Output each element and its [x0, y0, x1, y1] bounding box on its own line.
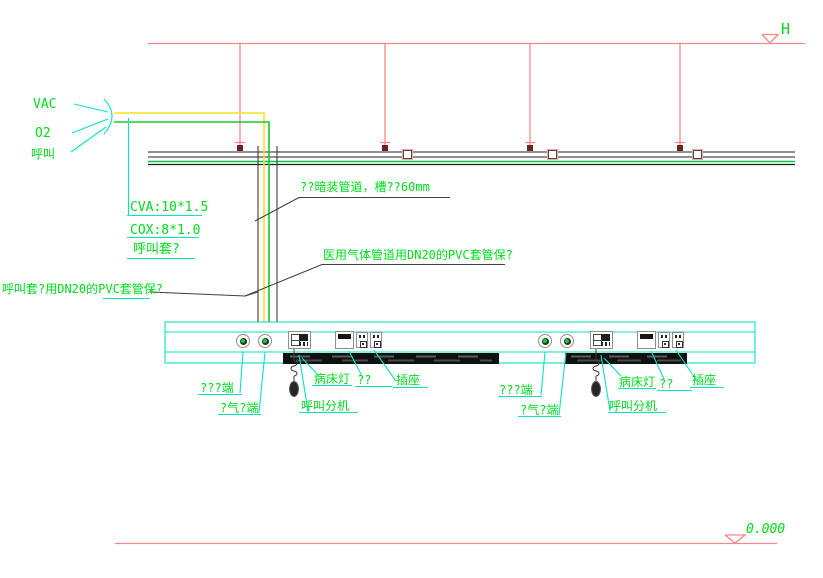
rail-clamp-2 — [548, 150, 557, 159]
socket-pins — [359, 335, 365, 338]
gas-outlet-ring — [564, 338, 571, 345]
label-vac: VAC — [33, 98, 56, 112]
socket-outlet — [360, 341, 367, 348]
label-o2: O2 — [35, 127, 51, 141]
note-call-sleeve-dn20: 呼叫套?用DN20的PVC套管保? — [2, 283, 163, 296]
note-cva-spec: CVA:10*1.5 — [130, 201, 208, 215]
call-unit-grille — [299, 342, 308, 346]
label-bed-light-left: 病床灯 — [314, 373, 350, 386]
bed-light-switch-right — [637, 331, 656, 349]
gas-outlet-2-right — [560, 334, 574, 348]
gas-outlet-dot — [565, 339, 569, 343]
call-unit-speaker — [601, 334, 610, 341]
label-call-extension-right: 呼叫分机 — [609, 400, 657, 413]
label-bed-light-right: 病床灯 — [619, 376, 655, 389]
cad-canvas: VAC O2 呼叫 CVA:10*1.5 COX:8*1.0 呼叫套? ??暗装… — [0, 0, 823, 578]
gas-outlet-dot — [543, 339, 547, 343]
gas-outlet-ring — [262, 338, 269, 345]
note-cox-spec: COX:8*1.0 — [130, 224, 200, 238]
label-terminal-b-right: ?气?端 — [520, 404, 558, 417]
note-concealed-pipe: ??暗装管道，槽??60mm — [300, 181, 430, 194]
rail-clamp-1 — [403, 150, 412, 159]
level-markers — [115, 35, 805, 544]
gas-outlet-1-right — [538, 334, 552, 348]
label-floor-level: 0.000 — [746, 523, 785, 537]
socket-2-right — [672, 332, 684, 348]
socket-2-left — [370, 332, 382, 348]
socket-outlet — [374, 341, 381, 348]
gas-outlet-ring — [542, 338, 549, 345]
socket-pins — [661, 335, 667, 338]
call-unit-speaker — [299, 334, 308, 341]
socket-1-left — [356, 332, 368, 348]
label-ceiling-level: H — [781, 21, 790, 38]
socket-pins — [675, 335, 681, 338]
label-terminal-a-left: ???端 — [200, 382, 234, 395]
label-unknown-left: ?? — [357, 374, 371, 387]
socket-outlet — [676, 341, 683, 348]
label-leaders — [71, 99, 202, 299]
bed-light-switch-left — [335, 331, 354, 349]
call-extension-unit-left — [288, 331, 311, 349]
gas-outlet-ring — [240, 338, 247, 345]
bed-light-bars — [283, 353, 687, 364]
label-socket-left: 插座 — [396, 374, 420, 387]
switch-bar — [338, 334, 351, 339]
note-medical-gas-sleeve: 医用气体管道用DN20的PVC套管保? — [323, 249, 513, 262]
switch-bar — [640, 334, 653, 339]
note-call-sleeve: 呼叫套? — [133, 243, 180, 257]
rail-clamp-3 — [693, 150, 702, 159]
gas-outlet-dot — [241, 339, 245, 343]
gas-outlet-1-left — [236, 334, 250, 348]
socket-1-right — [658, 332, 670, 348]
socket-pins — [373, 335, 379, 338]
call-unit-grille — [601, 342, 610, 346]
label-call-extension-left: 呼叫分机 — [301, 400, 349, 413]
gas-outlet-dot — [263, 339, 267, 343]
label-terminal-a-right: ???端 — [499, 384, 533, 397]
call-extension-unit-right — [590, 331, 613, 349]
hanger-drops — [235, 44, 685, 152]
gas-outlet-2-left — [258, 334, 272, 348]
label-unknown-right: ?? — [659, 378, 673, 391]
socket-outlet — [662, 341, 669, 348]
label-terminal-b-left: ?气?端 — [220, 402, 258, 415]
label-socket-right: 插座 — [692, 374, 716, 387]
label-call: 呼叫 — [31, 148, 55, 161]
